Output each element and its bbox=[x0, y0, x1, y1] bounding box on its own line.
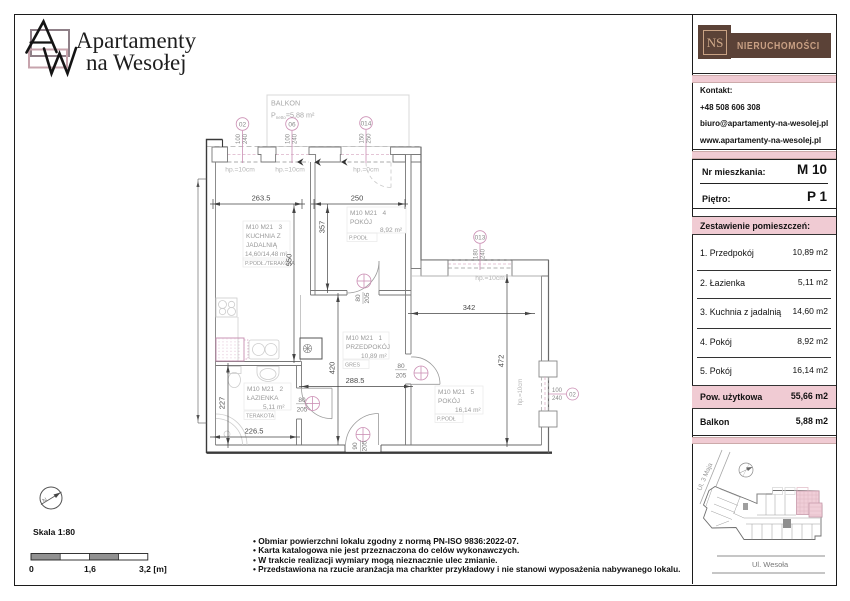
svg-text:KUCHNIA Z: KUCHNIA Z bbox=[246, 233, 281, 240]
svg-text:014: 014 bbox=[361, 121, 372, 128]
svg-text:227: 227 bbox=[218, 397, 227, 410]
svg-text:205: 205 bbox=[362, 440, 369, 451]
svg-text:226.5: 226.5 bbox=[245, 427, 264, 436]
svg-text:M10 M21 2: M10 M21 2 bbox=[247, 386, 284, 393]
svg-text:hp.=0cm: hp.=0cm bbox=[353, 167, 379, 174]
svg-text:550: 550 bbox=[285, 254, 294, 267]
svg-text:ŁAZIENKA: ŁAZIENKA bbox=[247, 395, 279, 402]
svg-text:80: 80 bbox=[298, 397, 306, 404]
svg-text:M10 M21 3: M10 M21 3 bbox=[246, 224, 283, 231]
svg-text:100: 100 bbox=[552, 388, 563, 394]
svg-text:hp.=10cm: hp.=10cm bbox=[518, 379, 524, 406]
svg-text:14,60/14,48 m²: 14,60/14,48 m² bbox=[245, 251, 287, 258]
svg-text:288.5: 288.5 bbox=[346, 376, 365, 385]
svg-text:420: 420 bbox=[328, 362, 337, 375]
svg-text:240: 240 bbox=[243, 133, 249, 144]
svg-text:342: 342 bbox=[463, 303, 476, 312]
svg-text:100: 100 bbox=[286, 133, 292, 144]
svg-text:5,11 m²: 5,11 m² bbox=[263, 404, 285, 411]
svg-text:180: 180 bbox=[474, 248, 480, 259]
svg-text:P.PODŁ: P.PODŁ bbox=[437, 417, 456, 423]
svg-text:250: 250 bbox=[351, 194, 364, 203]
svg-text:POKÓJ: POKÓJ bbox=[438, 396, 460, 405]
svg-text:8,92 m²: 8,92 m² bbox=[380, 227, 403, 234]
svg-text:240: 240 bbox=[293, 133, 299, 144]
svg-text:PRZEDPOKÓJ: PRZEDPOKÓJ bbox=[346, 342, 390, 351]
svg-text:POKÓJ: POKÓJ bbox=[350, 217, 372, 226]
svg-text:250: 250 bbox=[367, 133, 373, 144]
svg-text:GRES: GRES bbox=[345, 363, 360, 369]
svg-text:16,14 m²: 16,14 m² bbox=[455, 407, 481, 414]
svg-text:100: 100 bbox=[236, 133, 242, 144]
svg-text:150: 150 bbox=[360, 133, 366, 144]
svg-text:240: 240 bbox=[552, 396, 563, 402]
svg-text:013: 013 bbox=[475, 235, 486, 242]
svg-text:90: 90 bbox=[352, 442, 359, 450]
svg-text:hp.=10cm: hp.=10cm bbox=[275, 167, 305, 174]
svg-text:hp.=10cm: hp.=10cm bbox=[225, 167, 255, 174]
svg-text:hp.=10cm: hp.=10cm bbox=[475, 275, 505, 282]
svg-text:357: 357 bbox=[318, 221, 327, 234]
svg-text:M10 M21 1: M10 M21 1 bbox=[346, 335, 383, 342]
svg-text:M10 M21 5: M10 M21 5 bbox=[438, 389, 475, 396]
svg-text:205: 205 bbox=[297, 407, 308, 414]
svg-text:Pnetto=5,88 m²: Pnetto=5,88 m² bbox=[271, 111, 315, 121]
svg-text:JADALNIĄ: JADALNIĄ bbox=[246, 242, 278, 249]
svg-text:205: 205 bbox=[396, 373, 407, 380]
svg-text:M10 M21 4: M10 M21 4 bbox=[350, 210, 387, 217]
svg-text:P.PODŁ: P.PODŁ bbox=[349, 236, 368, 242]
svg-text:02: 02 bbox=[569, 393, 576, 399]
svg-text:240: 240 bbox=[481, 248, 487, 259]
svg-text:80: 80 bbox=[397, 363, 405, 370]
svg-text:BALKON: BALKON bbox=[271, 99, 300, 108]
svg-text:263.5: 263.5 bbox=[252, 194, 271, 203]
svg-text:472: 472 bbox=[497, 355, 506, 368]
svg-text:02: 02 bbox=[239, 122, 247, 129]
svg-text:06: 06 bbox=[288, 122, 296, 129]
svg-text:80: 80 bbox=[355, 294, 362, 302]
svg-text:205: 205 bbox=[364, 292, 371, 303]
svg-text:TERAKOTA: TERAKOTA bbox=[246, 414, 275, 420]
svg-text:10,89 m²: 10,89 m² bbox=[361, 353, 387, 360]
